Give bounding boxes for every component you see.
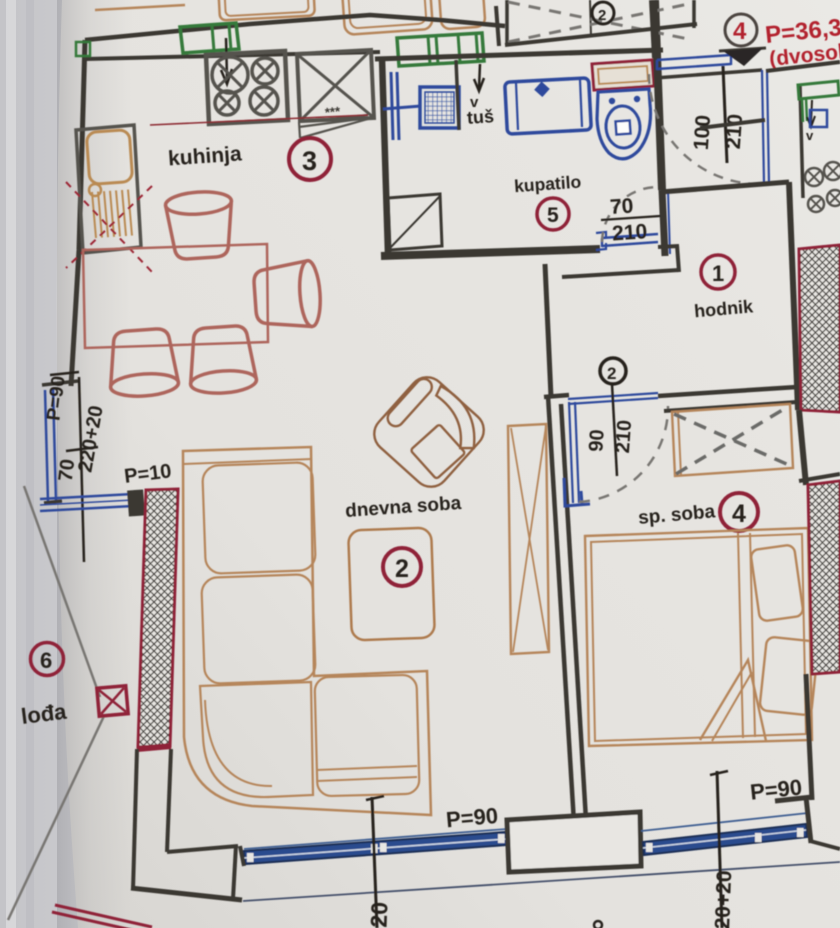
svg-text:tuš: tuš — [466, 106, 494, 128]
svg-text:220+20: 220+20 — [711, 870, 736, 928]
svg-text:v: v — [806, 128, 814, 143]
svg-text:90: 90 — [585, 429, 608, 453]
svg-text:P=90: P=90 — [445, 803, 499, 832]
svg-text:4: 4 — [732, 500, 746, 528]
svg-text:2: 2 — [598, 7, 606, 24]
svg-text:4: 4 — [733, 18, 747, 45]
svg-text:3: 3 — [302, 146, 317, 176]
svg-text:1: 1 — [712, 261, 724, 286]
svg-text:210: 210 — [722, 113, 747, 150]
svg-text:2: 2 — [395, 555, 409, 583]
svg-text:5: 5 — [547, 204, 559, 227]
svg-text:20: 20 — [366, 901, 393, 927]
svg-text:70: 70 — [609, 194, 634, 219]
svg-text:6: 6 — [40, 648, 52, 673]
svg-text:2: 2 — [607, 364, 616, 383]
svg-text:100: 100 — [690, 114, 715, 151]
svg-text:210: 210 — [611, 220, 648, 245]
svg-text:210: 210 — [612, 419, 636, 454]
